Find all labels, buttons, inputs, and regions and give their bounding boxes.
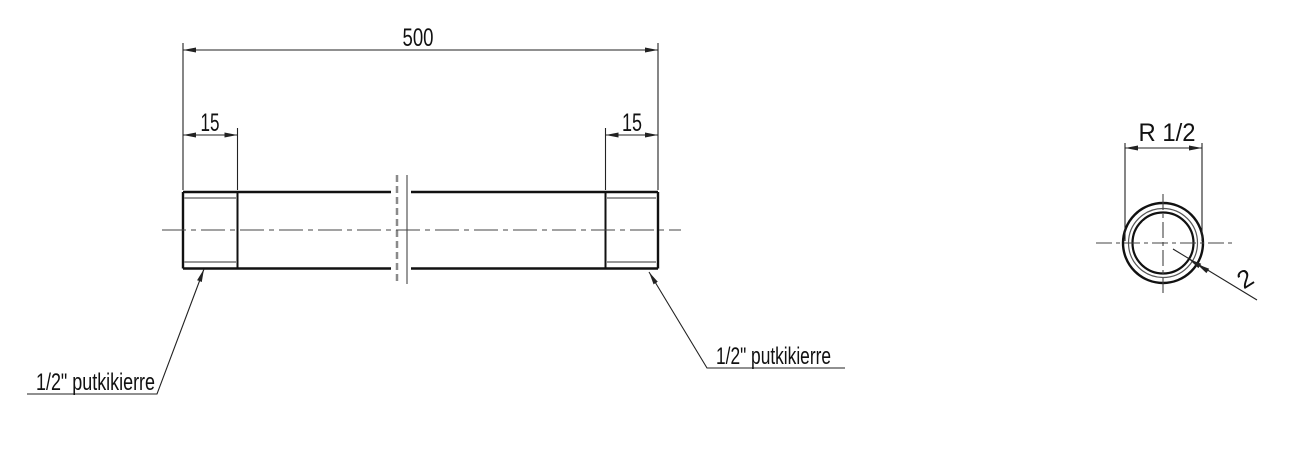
- dim-r12-value: R 1/2: [1139, 119, 1196, 147]
- side-view: 500 15 15 1/2" putkikierre 1/2" putkikie…: [27, 24, 845, 396]
- dim-overall-length: 500: [183, 24, 658, 190]
- thread-label-left: 1/2" putkikierre: [36, 369, 155, 396]
- leader-thread-right: 1/2" putkikierre: [649, 272, 845, 370]
- wall-thickness-arrow-outer: [1197, 264, 1209, 273]
- dim-500-value: 500: [403, 24, 434, 52]
- leader-thread-left: 1/2" putkikierre: [27, 269, 204, 396]
- thread-label-right: 1/2" putkikierre: [716, 343, 831, 370]
- drawing-canvas: 500 15 15 1/2" putkikierre 1/2" putkikie…: [0, 0, 1298, 460]
- wall-thickness-value: 2: [1232, 264, 1259, 295]
- dim-thread-left: 15: [183, 109, 238, 190]
- dim-15-left-value: 15: [201, 109, 220, 137]
- technical-drawing: 500 15 15 1/2" putkikierre 1/2" putkikie…: [0, 0, 1298, 460]
- section-view: R 1/2 2: [1096, 119, 1259, 300]
- dim-thread-right: 15: [606, 109, 659, 190]
- dim-15-right-value: 15: [622, 109, 642, 137]
